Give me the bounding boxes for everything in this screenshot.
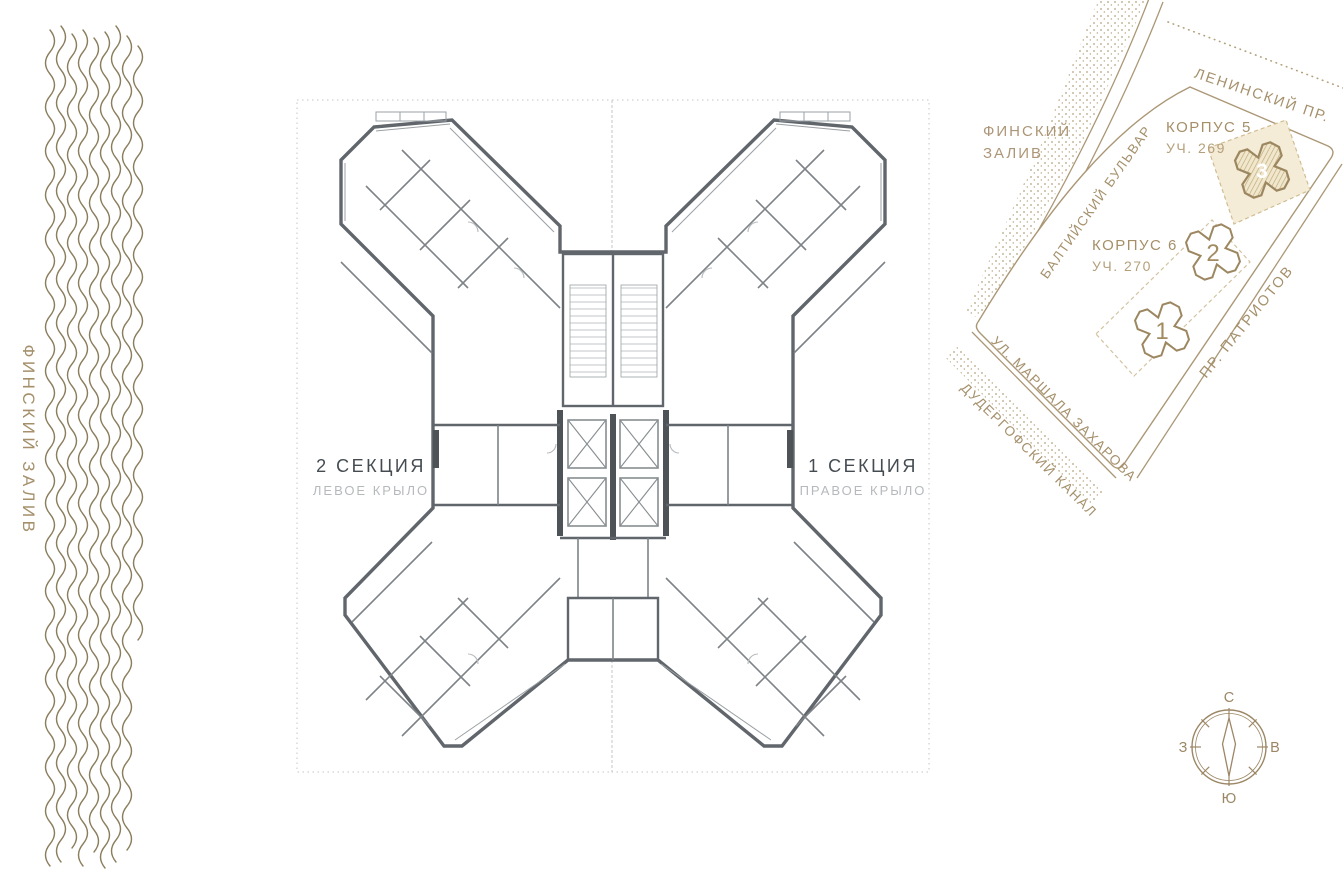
compass-south-label: Ю [1222,791,1237,807]
compass-west-label: З [1179,740,1188,756]
section-2-label: 2 СЕКЦИЯ ЛЕВОЕ КРЫЛО [295,456,447,498]
compass-rose: С Ю З В [1174,688,1284,808]
compass-east-label: В [1270,740,1280,756]
korpus-5-label[interactable]: КОРПУС 5 УЧ. 269 [1166,119,1252,156]
korpus-6-label[interactable]: КОРПУС 6 УЧ. 270 [1092,237,1178,274]
map-gulf-label: ФИНСКИЙ ЗАЛИВ [983,121,1071,165]
section-2-subtitle: ЛЕВОЕ КРЫЛО [295,483,447,498]
section-2-title: 2 СЕКЦИЯ [295,456,447,477]
page-canvas: ФИНСКИЙ ЗАЛИВ [0,0,1343,880]
section-1-title: 1 СЕКЦИЯ [787,456,939,477]
floorplan-drawing [295,95,935,790]
gulf-waves-decoration [40,18,152,874]
gulf-of-finland-label: ФИНСКИЙ ЗАЛИВ [18,345,38,536]
stair-flight-left [570,285,606,377]
compass-needle [1223,718,1236,776]
building-1-number: 1 [1155,318,1168,345]
section-1-subtitle: ПРАВОЕ КРЫЛО [787,483,939,498]
stair-flight-right [621,285,657,377]
compass-north-label: С [1224,690,1234,706]
building-3-number: 3 [1256,160,1268,183]
building-2-number: 2 [1206,240,1219,267]
section-1-label: 1 СЕКЦИЯ ПРАВОЕ КРЫЛО [787,456,939,498]
